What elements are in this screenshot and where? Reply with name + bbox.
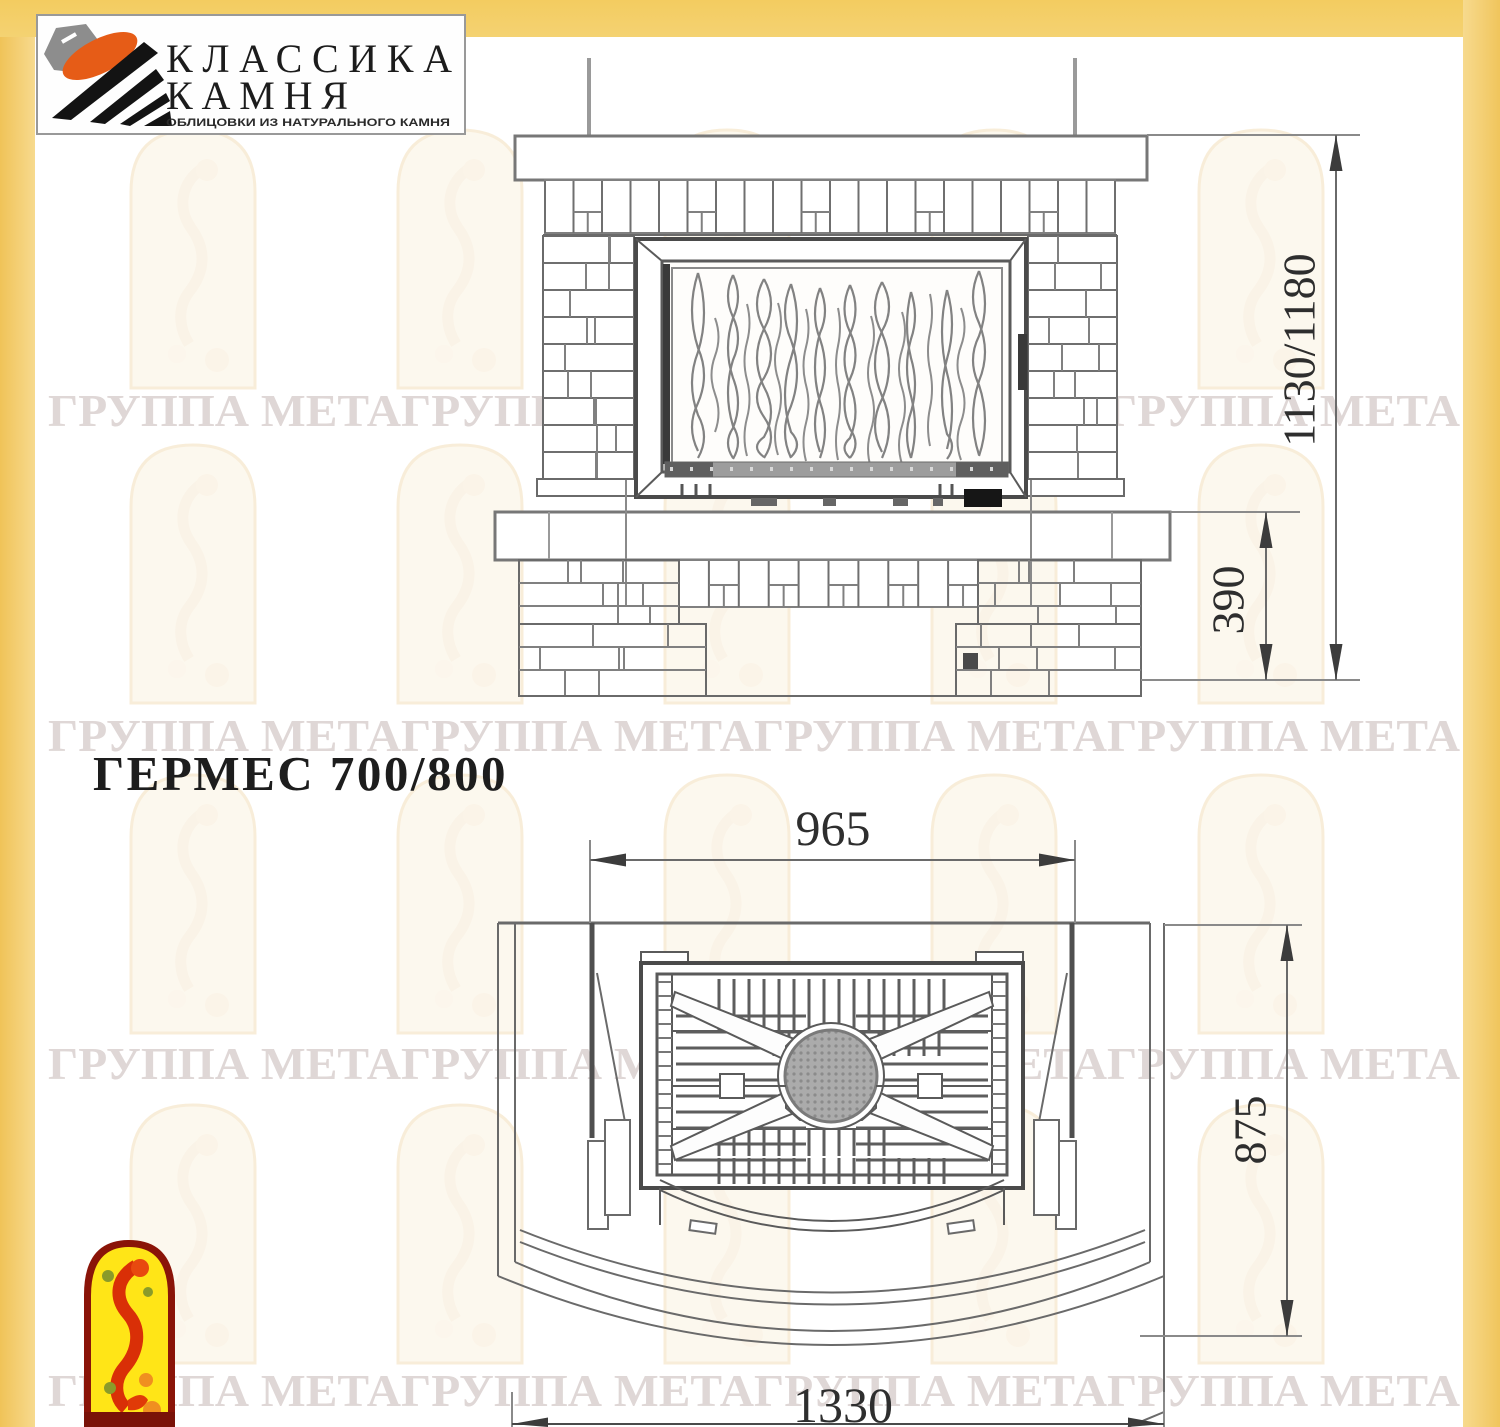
svg-text:ОБЛИЦОВКИ ИЗ НАТУРАЛЬНОГО КАМН: ОБЛИЦОВКИ ИЗ НАТУРАЛЬНОГО КАМНЯ (166, 117, 450, 129)
svg-text:875: 875 (1225, 1096, 1276, 1165)
svg-text:КАМНЯ: КАМНЯ (166, 73, 348, 118)
svg-text:1330: 1330 (793, 1377, 893, 1427)
svg-text:1130/1180: 1130/1180 (1274, 253, 1325, 446)
svg-text:390: 390 (1203, 566, 1254, 635)
svg-text:965: 965 (796, 800, 871, 856)
